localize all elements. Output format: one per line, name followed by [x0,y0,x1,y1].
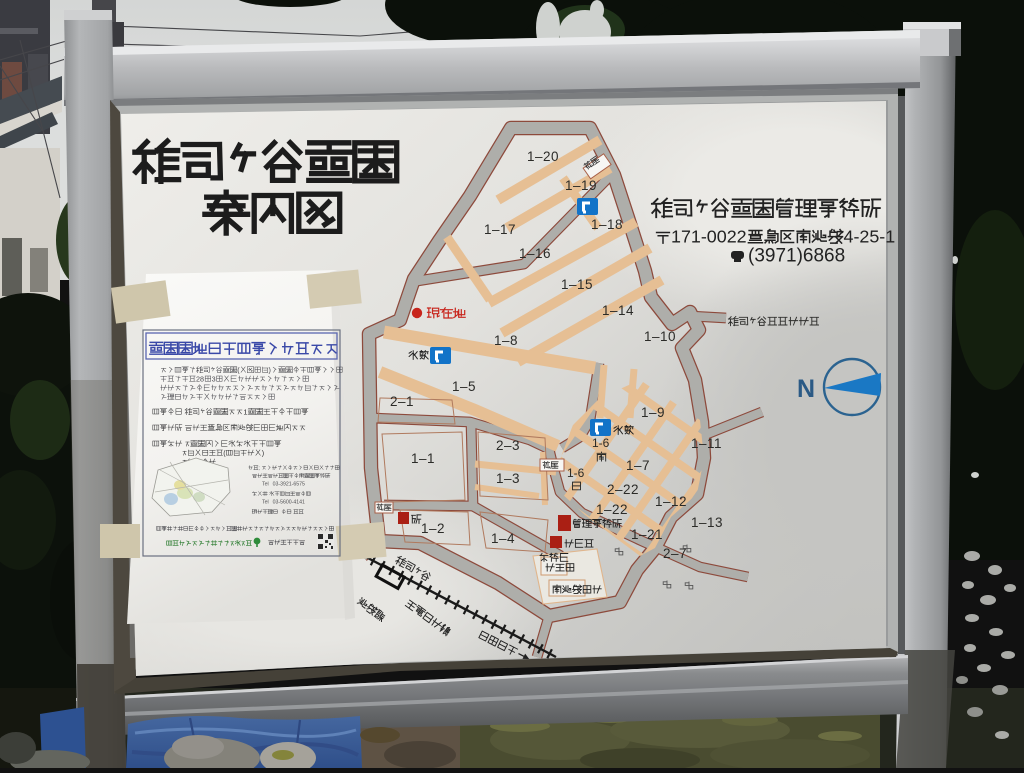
svg-text:): ) [269,365,271,374]
svg-text:1-6: 1-6 [567,466,585,480]
svg-text:(3971)6868: (3971)6868 [748,246,845,267]
svg-text:1–20: 1–20 [527,149,559,164]
svg-text:171-0022: 171-0022 [671,227,747,247]
svg-text:N: N [797,375,815,403]
svg-text:1–22: 1–22 [596,502,628,517]
svg-text:1–11: 1–11 [691,436,722,451]
svg-text:1–2: 1–2 [421,521,445,536]
svg-text:3: 3 [212,374,216,383]
svg-text:03-5600-4141: 03-5600-4141 [273,500,305,506]
svg-text:): ) [262,448,264,457]
svg-text:03-3921-6575: 03-3921-6575 [273,482,305,488]
svg-text:1–9: 1–9 [641,405,665,420]
svg-text:1–8: 1–8 [494,333,518,348]
svg-text:1–13: 1–13 [691,515,723,530]
svg-text:1–16: 1–16 [519,246,551,261]
svg-text:2–3: 2–3 [496,438,520,453]
svg-text:1–12: 1–12 [655,494,687,509]
svg-text:1–4: 1–4 [491,531,515,546]
svg-text:28: 28 [196,374,204,383]
svg-text:1–19: 1–19 [565,178,597,193]
svg-text:1–17: 1–17 [484,222,516,237]
svg-text:Tel: Tel [262,482,269,488]
svg-text:;: ; [258,466,259,472]
svg-text:1-6: 1-6 [592,436,610,450]
svg-text:2–22: 2–22 [607,482,639,497]
svg-text:4-25-1: 4-25-1 [844,227,896,247]
svg-text:2–1: 2–1 [390,394,414,409]
svg-text:1–5: 1–5 [452,379,476,394]
svg-text:Tel: Tel [262,500,269,506]
svg-text:1–10: 1–10 [644,329,676,344]
svg-text:1–15: 1–15 [561,277,593,292]
svg-text:1–1: 1–1 [411,451,435,466]
svg-text:1–14: 1–14 [602,303,634,318]
svg-text:1–21: 1–21 [631,527,663,542]
svg-text:1: 1 [243,407,247,416]
svg-text:1–3: 1–3 [496,471,520,486]
svg-text:1–18: 1–18 [591,217,623,232]
svg-text:1–7: 1–7 [626,458,650,473]
